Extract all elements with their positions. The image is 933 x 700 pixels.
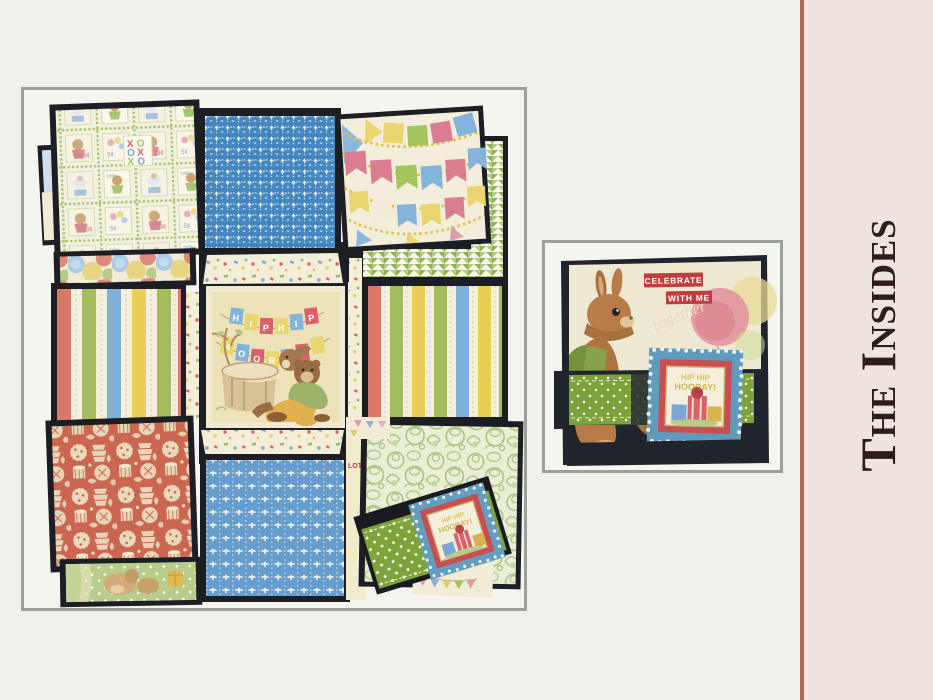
svg-text:P: P [263,323,269,333]
svg-text:X: X [127,157,134,168]
svg-text:H: H [232,313,240,324]
svg-text:CELEBRATE: CELEBRATE [645,275,703,286]
svg-text:WITH ME: WITH ME [668,293,710,304]
svg-text:O: O [137,156,145,167]
svg-text:LOT: LOT [348,463,363,470]
svg-text:H: H [278,323,285,333]
svg-text:O: O [238,349,246,360]
